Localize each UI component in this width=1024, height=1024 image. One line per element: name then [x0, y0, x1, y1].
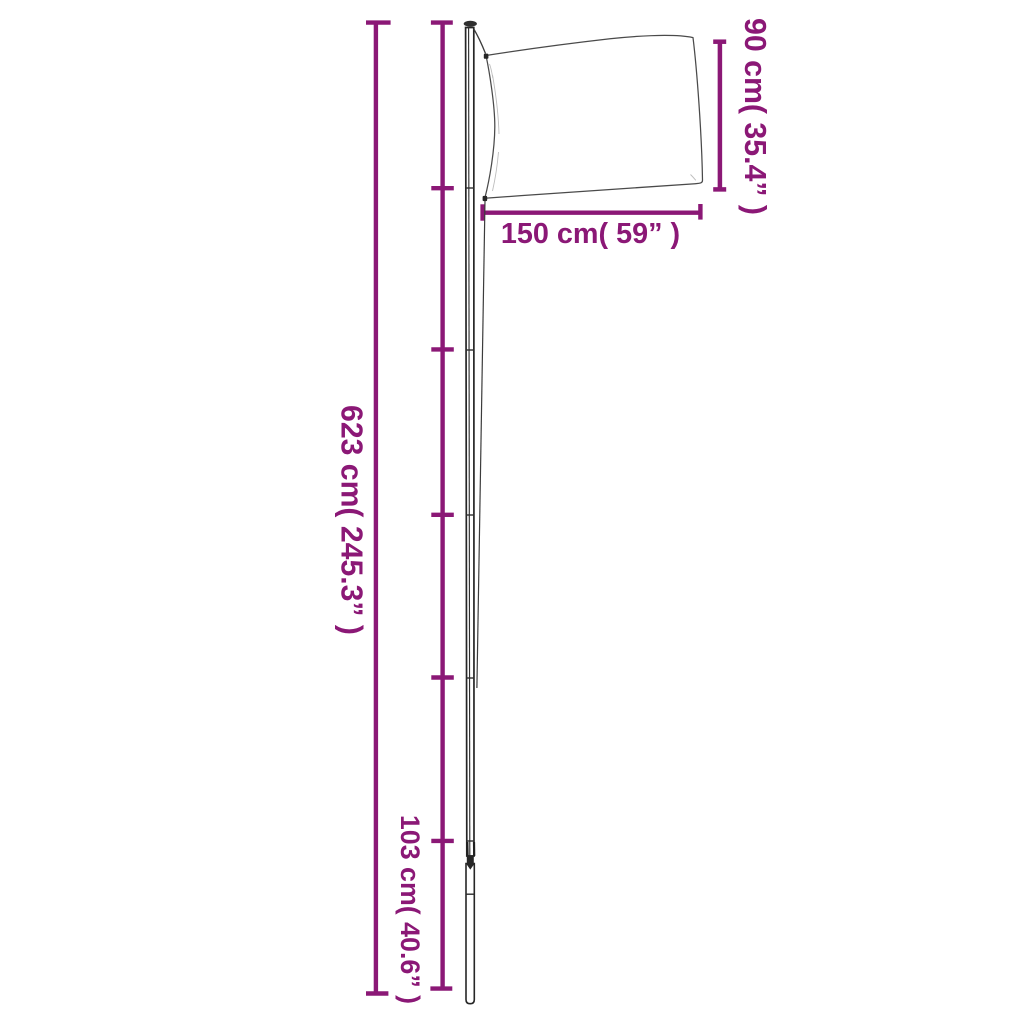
svg-text:90 cm( 35.4” ): 90 cm( 35.4” )	[738, 18, 771, 215]
svg-text:103 cm( 40.6” ): 103 cm( 40.6” )	[395, 815, 425, 1004]
svg-text:623 cm( 245.3” ): 623 cm( 245.3” )	[334, 405, 367, 635]
svg-text:150 cm( 59” ): 150 cm( 59” )	[501, 218, 680, 250]
